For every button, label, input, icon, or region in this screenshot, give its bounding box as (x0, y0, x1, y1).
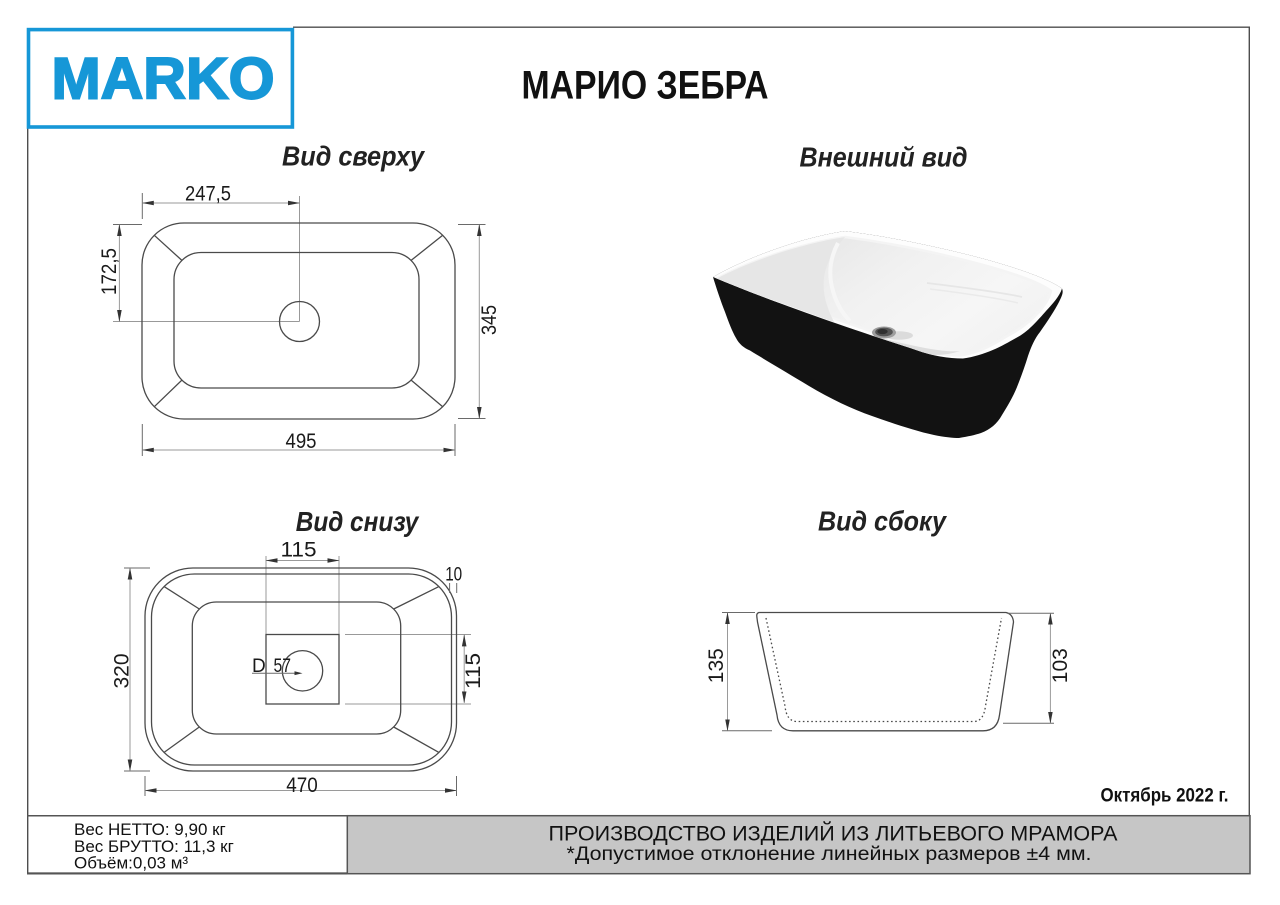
svg-text:D: D (252, 656, 266, 677)
svg-text:Внешний вид: Внешний вид (800, 142, 968, 173)
svg-text:Вид сбоку: Вид сбоку (818, 506, 947, 537)
svg-text:Октябрь 2022 г.: Октябрь 2022 г. (1101, 786, 1229, 807)
svg-text:ПРОИЗВОДСТВО ИЗДЕЛИЙ ИЗ ЛИТЬЕВ: ПРОИЗВОДСТВО ИЗДЕЛИЙ ИЗ ЛИТЬЕВОГО МРАМОР… (549, 822, 1118, 846)
svg-text:МАРИО ЗЕБРА: МАРИО ЗЕБРА (522, 64, 769, 108)
svg-text:345: 345 (478, 305, 501, 335)
svg-text:MARKO: MARKO (52, 47, 275, 112)
svg-text:470: 470 (286, 774, 318, 797)
svg-text:320: 320 (111, 653, 134, 688)
svg-text:103: 103 (1049, 648, 1072, 683)
svg-text:10: 10 (445, 565, 462, 586)
svg-text:115: 115 (281, 539, 317, 562)
svg-text:Вид сверху: Вид сверху (282, 141, 425, 172)
svg-text:495: 495 (286, 430, 317, 453)
svg-text:Объём:0,03 м³: Объём:0,03 м³ (74, 854, 188, 873)
svg-text:135: 135 (705, 648, 728, 683)
svg-text:115: 115 (462, 653, 485, 689)
svg-text:*Допустимое отклонение линейны: *Допустимое отклонение линейных размеров… (567, 843, 1092, 865)
svg-text:172,5: 172,5 (98, 248, 121, 295)
svg-text:247,5: 247,5 (185, 183, 231, 206)
svg-text:57: 57 (274, 656, 292, 677)
svg-text:Вид снизу: Вид снизу (296, 506, 420, 537)
